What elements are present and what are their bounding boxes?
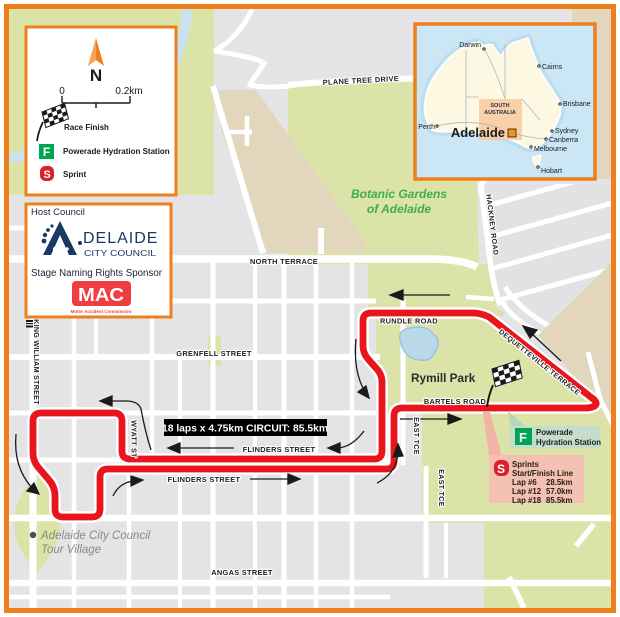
svg-text:Adelaide: Adelaide	[451, 125, 505, 140]
svg-text:Lap #18: Lap #18	[512, 496, 542, 505]
svg-text:N: N	[90, 66, 102, 85]
svg-text:F: F	[519, 430, 527, 445]
svg-text:Host Council: Host Council	[31, 207, 85, 218]
svg-text:MAC: MAC	[78, 285, 124, 305]
svg-text:ANGAS STREET: ANGAS STREET	[211, 568, 273, 577]
svg-text:Brisbane: Brisbane	[563, 101, 591, 108]
svg-text:Start/Finish Line: Start/Finish Line	[512, 469, 574, 478]
svg-text:Motor Accident Commission: Motor Accident Commission	[71, 309, 132, 314]
svg-text:Sydney: Sydney	[555, 128, 579, 135]
svg-text:SOUTH: SOUTH	[490, 103, 509, 109]
svg-text:Cairns: Cairns	[542, 64, 563, 71]
svg-text:DELAIDE: DELAIDE	[83, 230, 158, 247]
svg-text:Powerade Hydration Station: Powerade Hydration Station	[63, 147, 170, 156]
svg-text:Canberra: Canberra	[549, 137, 578, 144]
svg-text:CITY COUNCIL: CITY COUNCIL	[84, 249, 157, 258]
svg-text:Lap #12: Lap #12	[512, 487, 542, 496]
svg-text:Melbourne: Melbourne	[534, 146, 567, 153]
svg-text:Race Finish: Race Finish	[64, 123, 109, 132]
svg-text:Hydration Station: Hydration Station	[536, 438, 601, 447]
svg-text:18 laps x 4.75km CIRCUIT: 85.5: 18 laps x 4.75km CIRCUIT: 85.5km	[162, 424, 328, 435]
svg-text:0: 0	[59, 86, 65, 97]
svg-text:Botanic Gardens: Botanic Gardens	[351, 187, 447, 201]
svg-text:Powerade: Powerade	[536, 428, 573, 437]
svg-text:85.5km: 85.5km	[546, 496, 573, 505]
svg-text:KING WILLIAM STREET: KING WILLIAM STREET	[32, 319, 40, 405]
svg-text:Sprint: Sprint	[63, 170, 86, 179]
svg-text:AUSTRALIA: AUSTRALIA	[484, 110, 516, 116]
svg-text:GRENFELL STREET: GRENFELL STREET	[176, 349, 252, 358]
svg-text:FLINDERS STREET: FLINDERS STREET	[243, 445, 316, 454]
svg-text:Sprints: Sprints	[512, 460, 540, 469]
svg-text:BARTELS ROAD: BARTELS ROAD	[424, 397, 487, 406]
svg-text:S: S	[43, 169, 50, 181]
svg-text:0.2km: 0.2km	[115, 86, 142, 97]
svg-text:Adelaide City Council: Adelaide City Council	[40, 530, 151, 542]
svg-text:NORTH TERRACE: NORTH TERRACE	[250, 257, 318, 266]
svg-text:Perth: Perth	[418, 124, 435, 131]
svg-text:Stage Naming Rights Sponsor: Stage Naming Rights Sponsor	[31, 268, 163, 279]
svg-text:WYATT ST: WYATT ST	[130, 420, 138, 458]
svg-text:EAST TCE: EAST TCE	[412, 417, 420, 454]
svg-text:of Adelaide: of Adelaide	[367, 202, 432, 216]
svg-text:EAST TCE: EAST TCE	[437, 469, 445, 506]
svg-text:Lap #6: Lap #6	[512, 478, 537, 487]
svg-text:RUNDLE ROAD: RUNDLE ROAD	[380, 317, 438, 326]
svg-text:28.5km: 28.5km	[546, 478, 573, 487]
svg-text:Tour Village: Tour Village	[41, 544, 101, 556]
svg-text:F: F	[43, 145, 50, 159]
svg-text:57.0km: 57.0km	[546, 487, 573, 496]
svg-text:FLINDERS STREET: FLINDERS STREET	[168, 475, 241, 484]
svg-text:Hobart: Hobart	[541, 168, 562, 175]
svg-text:Rymill Park: Rymill Park	[411, 371, 476, 385]
svg-text:S: S	[497, 462, 505, 476]
svg-text:Darwin: Darwin	[459, 42, 481, 49]
